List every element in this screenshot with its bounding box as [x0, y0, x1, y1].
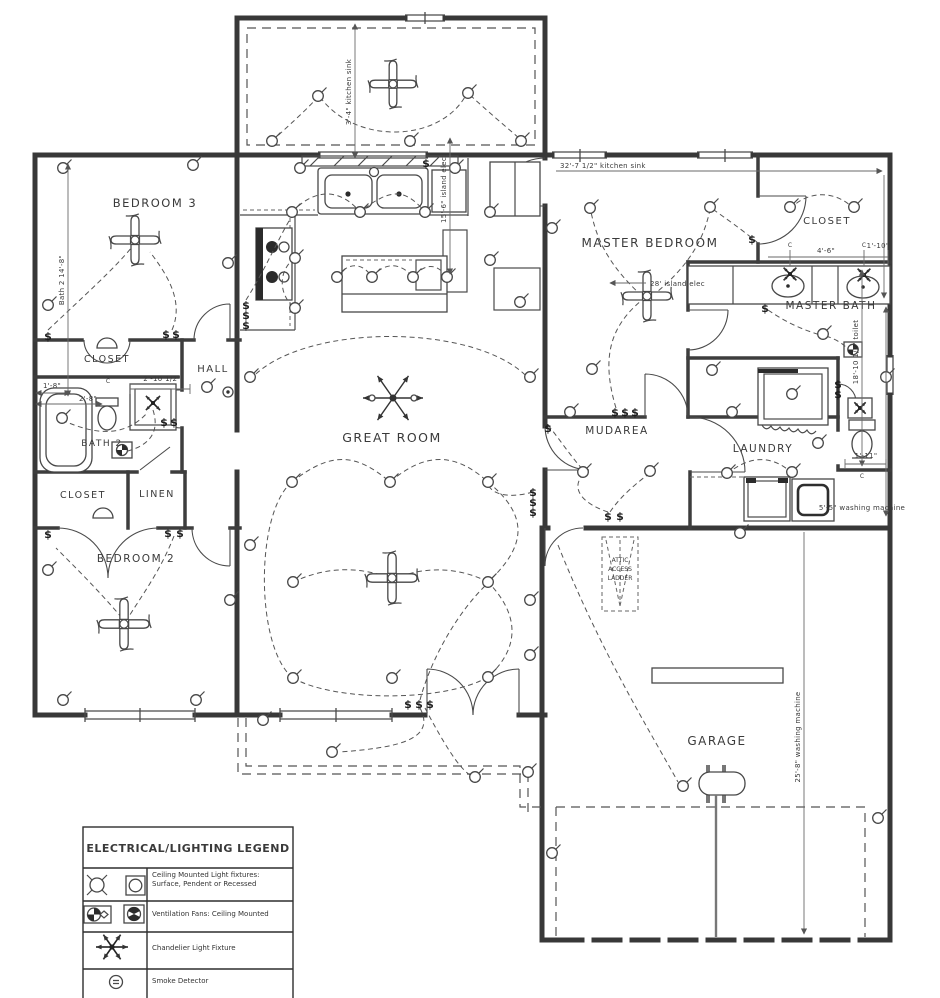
light-stem [492, 474, 497, 479]
light-stem [52, 297, 57, 302]
light-stem [304, 160, 309, 165]
closet-light-icon [93, 508, 113, 518]
light-stem [67, 692, 72, 697]
switch-symbol: $ [621, 406, 629, 419]
room-label-bedroom2: BEDROOM 2 [97, 553, 175, 565]
switch-symbol: $ [422, 157, 430, 170]
garage-light-fixture [652, 668, 783, 683]
room-label-bedroom3: BEDROOM 3 [113, 196, 198, 210]
light-stem [556, 220, 561, 225]
light-stem [524, 294, 529, 299]
vent-fan-icon-b [124, 905, 144, 923]
vent-fan-icon-a [84, 906, 111, 923]
switch-symbol: $ [242, 319, 250, 332]
ceiling-fan-icon [617, 266, 677, 326]
dishwasher [432, 170, 466, 212]
attic-label-2: ACCESS [608, 566, 632, 573]
room-label-garage: GARAGE [687, 734, 746, 748]
light-stem [492, 669, 497, 674]
legend-row-3: Chandelier Light Fixture [152, 944, 290, 964]
dim-tub-a: 1'-8" [43, 382, 61, 390]
switch-symbol: $ [44, 528, 52, 541]
shower-bath2 [130, 384, 176, 430]
light-stem [534, 647, 539, 652]
light-stem [414, 133, 419, 138]
laundry-sink [792, 479, 834, 521]
room-label-mudarea: MUDAREA [585, 425, 648, 437]
chandelier-icon [363, 374, 423, 421]
legend-label-chandelier: Chandelier Light Fixture [152, 944, 290, 953]
dim-vanity-edge: 1'-10" [867, 242, 890, 250]
light-stem [594, 200, 599, 205]
dim-kitchen-sink-v: 3'-4" kitchen sink [345, 58, 353, 125]
light-stem [525, 133, 530, 138]
light-stem [211, 379, 216, 384]
ceiling-fan-icon [105, 210, 165, 270]
light-stem [736, 404, 741, 409]
dim-bath2-run: Bath 2 14'-8" [58, 255, 66, 305]
centerline-mark: C [862, 242, 866, 249]
switch-symbol: $ [631, 406, 639, 419]
light-stem [858, 199, 863, 204]
dim-washer-run: 25'-8" washing machine [794, 691, 802, 782]
light-stem [534, 592, 539, 597]
light-stem [396, 670, 401, 675]
centerline-mark: C [860, 473, 864, 480]
light-stem [297, 670, 302, 675]
room-label-linen: LINEN [139, 489, 175, 500]
legend-row-2: Ventilation Fans: Ceiling Mounted [152, 910, 290, 930]
switch-symbol: $ [761, 302, 769, 315]
legend-label-smoke: Smoke Detector [152, 977, 290, 986]
kitchen-sink [318, 168, 428, 215]
light-stem [882, 810, 887, 815]
switch-symbol: $ [748, 233, 756, 246]
room-label-laundry: LAUNDRY [733, 443, 793, 455]
dim-washer-span: 5'-5" washing machine [819, 504, 905, 512]
light-stem [459, 160, 464, 165]
switch-symbol: $ [404, 698, 412, 711]
light-stem [492, 574, 497, 579]
light-stem [714, 199, 719, 204]
washing-machine [690, 477, 790, 521]
light-stem [534, 369, 539, 374]
attic-label-3: LADDER [608, 575, 633, 582]
switch-symbol: $ [176, 527, 184, 540]
light-stem [827, 326, 832, 331]
legend-row-1: Ceiling Mounted Light fixtures: Surface,… [152, 871, 290, 899]
switch-symbol: $ [164, 527, 172, 540]
light-stem [276, 133, 281, 138]
light-stem [596, 361, 601, 366]
room-label-closet2: CLOSET [60, 490, 106, 501]
light-stem [322, 88, 327, 93]
chandelier-icon [96, 933, 128, 960]
legend-title: ELECTRICAL/LIGHTING LEGEND [86, 842, 289, 855]
closet-light-icon [97, 338, 117, 348]
switch-symbol: $ [604, 510, 612, 523]
light-stem [574, 404, 579, 409]
fixtures [40, 156, 890, 937]
light-stem [200, 692, 205, 697]
dim-toilet-run: 18'-10 1/2" toilet [852, 320, 860, 385]
switch-symbol: $ [44, 330, 52, 343]
ceiling-fan-icon [361, 547, 423, 609]
dim-hall-door: 2'-10 1/2" [143, 375, 181, 383]
light-stem [336, 744, 341, 749]
switch-symbol: $ [415, 698, 423, 711]
stove [256, 228, 292, 300]
smoke-detectors [223, 387, 233, 397]
refrigerator [490, 162, 540, 216]
light-stem [296, 204, 301, 209]
light-stem [532, 764, 537, 769]
room-label-hall: HALL [197, 364, 229, 375]
switch-symbol: $ [162, 328, 170, 341]
light-stem [299, 250, 304, 255]
light-stem [254, 537, 259, 542]
light-stem [687, 778, 692, 783]
dim-island-elec-v: 15'-6" island elec [440, 157, 448, 223]
chandelier [363, 374, 423, 421]
centerline-mark: C [106, 378, 110, 385]
garage-door-opener [699, 765, 745, 937]
master-shower [758, 368, 828, 434]
switch-symbol: $ [529, 506, 537, 519]
switch-symbol: $ [170, 416, 178, 429]
switch-symbol: $ [611, 406, 619, 419]
switch-symbol: $ [426, 698, 434, 711]
light-stem [67, 160, 72, 165]
room-label-master-closet: CLOSET [803, 216, 851, 227]
switch-symbol: $ [616, 510, 624, 523]
floor-plan-drawing: ATTIC ACCESS LADDER [0, 0, 940, 998]
switch-symbol: $ [160, 416, 168, 429]
smoke-detector-icon [110, 976, 123, 989]
ceiling-fan-icon [93, 593, 155, 655]
attic-access: ATTIC ACCESS LADDER [602, 537, 638, 611]
light-stem [479, 769, 484, 774]
legend-row-4: Smoke Detector [152, 977, 290, 997]
dim-kitchen-sink-h: 32'-7 1/2" kitchen sink [560, 162, 646, 170]
light-stem [716, 362, 721, 367]
light-stem [796, 464, 801, 469]
floor-plan-page: ATTIC ACCESS LADDER [0, 0, 940, 998]
light-stem [822, 435, 827, 440]
light-stem [297, 574, 302, 579]
recessed-light-icon [126, 876, 145, 895]
legend-label-vent-fans: Ventilation Fans: Ceiling Mounted [152, 910, 290, 919]
ceiling-fan-icon [364, 55, 421, 112]
light-stem [472, 85, 477, 90]
centerline-mark: C [788, 242, 792, 249]
attic-label-1: ATTIC [612, 557, 629, 564]
door-swings [58, 158, 856, 715]
dim-toilet-edge: 1'-11" [855, 452, 878, 460]
room-label-great-room: GREAT ROOM [342, 430, 442, 445]
room-label-closet: CLOSET [84, 354, 130, 365]
room-label-bath2: BATH 2 [81, 439, 122, 449]
dim-vanity-span: 4'-6" [817, 247, 835, 255]
switch-symbol: $ [834, 388, 842, 401]
light-stem [299, 300, 304, 305]
legend: ELECTRICAL/LIGHTING LEGEND Ceiling Mount… [83, 827, 293, 998]
light-stem [654, 463, 659, 468]
light-stem [52, 562, 57, 567]
room-label-master-bedroom: MASTER BEDROOM [582, 236, 719, 250]
legend-label-ceiling-lights: Ceiling Mounted Light fixtures: Surface,… [152, 871, 290, 889]
light-stem [587, 464, 592, 469]
light-stem [494, 252, 499, 257]
toilet-bath2 [96, 398, 118, 430]
kitchen-island [342, 256, 447, 312]
switch-symbol: $ [544, 422, 552, 435]
switch-symbol: $ [172, 328, 180, 341]
dim-tub-b: 2'-8" [79, 395, 97, 403]
dim-island-elec-h: 28' island elec [650, 280, 705, 288]
light-stem [890, 369, 895, 374]
light-stem [451, 269, 456, 274]
surface-light-icon [87, 875, 107, 895]
room-label-master-bath: MASTER BATH [786, 300, 877, 312]
